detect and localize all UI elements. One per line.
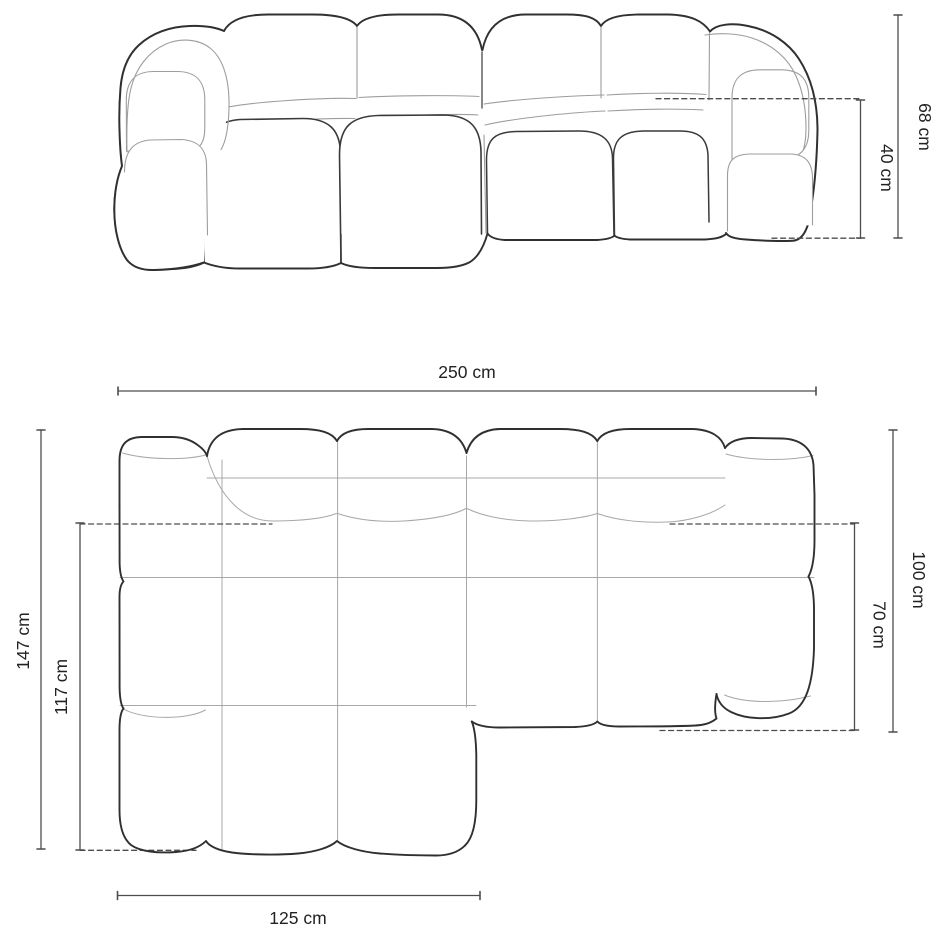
svg-text:250 cm: 250 cm bbox=[438, 362, 495, 382]
svg-text:117 cm: 117 cm bbox=[51, 659, 71, 715]
svg-text:70 cm: 70 cm bbox=[870, 601, 890, 649]
svg-text:147 cm: 147 cm bbox=[13, 612, 33, 669]
svg-text:125 cm: 125 cm bbox=[269, 908, 326, 928]
svg-text:68 cm: 68 cm bbox=[915, 103, 935, 151]
svg-text:40 cm: 40 cm bbox=[877, 144, 897, 192]
svg-text:100 cm: 100 cm bbox=[909, 551, 929, 608]
